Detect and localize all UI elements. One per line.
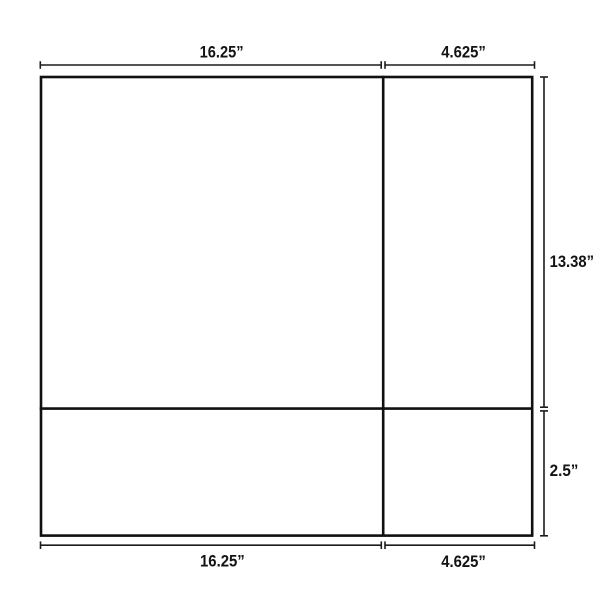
svg-text:16.25”: 16.25”	[200, 553, 245, 571]
svg-text:4.625”: 4.625”	[441, 553, 485, 571]
svg-text:4.625”: 4.625”	[441, 44, 485, 62]
svg-text:16.25”: 16.25”	[200, 44, 244, 62]
svg-text:2.5”: 2.5”	[550, 463, 579, 481]
svg-text:13.38”: 13.38”	[550, 253, 594, 271]
